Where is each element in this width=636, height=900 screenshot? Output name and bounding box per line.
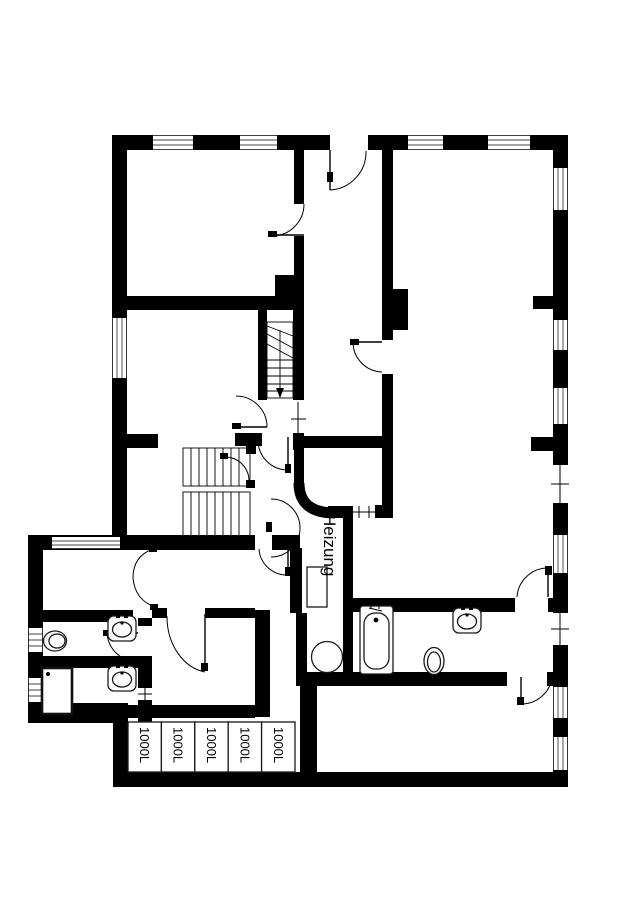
staircase-lower [183, 448, 250, 536]
door-icon [258, 437, 291, 473]
bathtub-icon [360, 605, 393, 674]
window-icon [52, 536, 120, 549]
toilet-icon [424, 648, 444, 675]
stairs-down-arrow-icon [276, 330, 284, 398]
door-icon [167, 614, 208, 672]
window-icon [553, 535, 568, 573]
floor-plan: 1000L 1000L 1000L 1000L 1000L Heizung [0, 0, 636, 900]
window-icon [153, 135, 193, 150]
tank: 1000L [262, 722, 295, 772]
window-icon [488, 135, 530, 150]
toilet-icon [44, 631, 67, 651]
staircase-upper [267, 322, 293, 398]
door-icon [350, 339, 382, 372]
sink-icon [108, 615, 136, 641]
window-icon [112, 318, 127, 378]
french-window-icon [551, 613, 569, 645]
window-icon [553, 687, 568, 718]
door-icon [232, 396, 267, 429]
glazed-door-icon [353, 506, 377, 518]
shower-tray-icon [42, 668, 72, 714]
tank-label: 1000L [271, 727, 286, 763]
door-icon [220, 453, 249, 481]
tank: 1000L [161, 722, 194, 772]
door-icon [517, 566, 552, 597]
window-icon [240, 135, 277, 150]
window-icon [553, 168, 568, 210]
door-icon [517, 677, 552, 705]
tank: 1000L [228, 722, 261, 772]
tank-label: 1000L [171, 727, 186, 763]
sink-icon [108, 665, 136, 691]
tank-label: 1000L [237, 727, 252, 763]
door-icon [268, 204, 304, 237]
sink-icon [453, 607, 481, 633]
window-icon [553, 388, 568, 424]
double-door-icon [133, 546, 158, 610]
french-window-icon [551, 465, 569, 503]
oil-drum-icon [312, 642, 343, 673]
tank-label: 1000L [204, 727, 219, 763]
tank: 1000L [128, 722, 161, 772]
tank: 1000L [195, 722, 228, 772]
heating-room-label: Heizung [320, 514, 339, 576]
window-icon [553, 737, 568, 770]
doors [103, 150, 552, 705]
tank-label: 1000L [137, 727, 152, 763]
storage-tank-row: 1000L 1000L 1000L 1000L 1000L [128, 722, 295, 772]
window-icon [553, 320, 568, 350]
floor-plan-page: 1000L 1000L 1000L 1000L 1000L Heizung [0, 0, 636, 900]
glazed-partition-icon [138, 688, 152, 700]
glazed-partition-icon [291, 402, 306, 435]
window-icon [28, 628, 43, 652]
window-icon [408, 135, 443, 150]
door-icon [327, 150, 366, 190]
